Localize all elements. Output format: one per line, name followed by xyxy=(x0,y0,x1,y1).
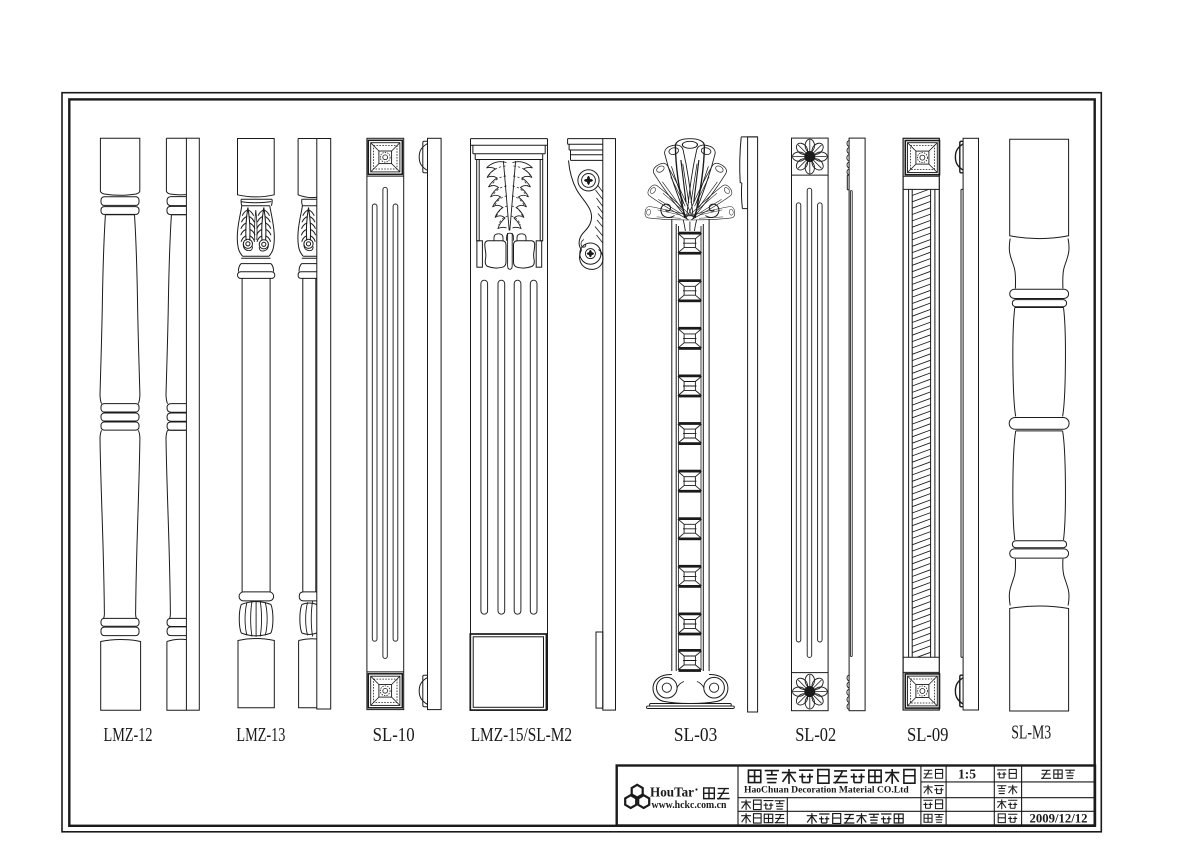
svg-text:LMZ-15/SL-M2: LMZ-15/SL-M2 xyxy=(471,724,572,746)
svg-text:SL-09: SL-09 xyxy=(907,724,948,746)
svg-text:www.hckc.com.cn: www.hckc.com.cn xyxy=(652,800,727,811)
svg-text:LMZ-13: LMZ-13 xyxy=(236,724,285,746)
svg-text:HaoChuan Decoration Material C: HaoChuan Decoration Material CO.Ltd xyxy=(744,785,909,796)
svg-text:HouTar: HouTar xyxy=(650,785,694,800)
svg-text:SL-02: SL-02 xyxy=(795,724,836,746)
svg-text:1:5: 1:5 xyxy=(958,767,976,782)
svg-text:SL-M3: SL-M3 xyxy=(1011,722,1051,744)
svg-text:SL-03: SL-03 xyxy=(674,724,717,746)
svg-text:SL-10: SL-10 xyxy=(373,724,415,746)
svg-text:2009/12/12: 2009/12/12 xyxy=(1030,811,1088,825)
svg-text:LMZ-12: LMZ-12 xyxy=(104,724,153,746)
